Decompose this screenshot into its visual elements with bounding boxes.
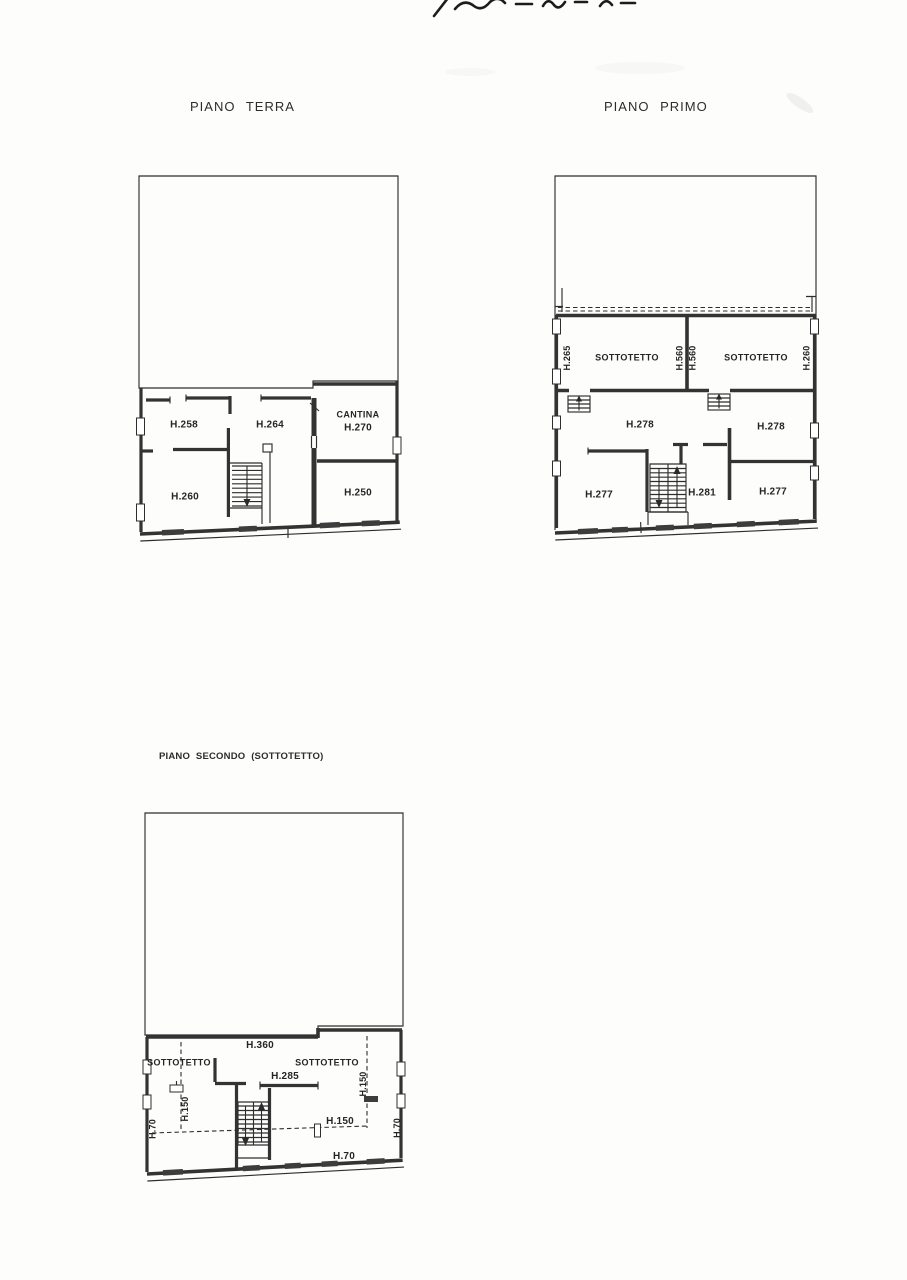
plan-title-piano-secondo: PIANO SECONDO (SOTTOTETTO): [159, 751, 323, 762]
height-label-h560-left: H.560: [675, 345, 685, 370]
terra-walls: [139, 176, 398, 532]
room-label-cantina: CANTINA: [337, 410, 380, 420]
room-label-h278-left: H.278: [626, 420, 654, 431]
floor-plan-piano-terra: H.258 H.264 CANTINA H.270 H.260 H.250: [128, 163, 412, 547]
plan-title-piano-primo: PIANO PRIMO: [604, 99, 708, 114]
primo-steps-left: [568, 396, 590, 413]
floor-plan-piano-secondo: H.360 SOTTOTETTO SOTTOTETTO H.285 H.150 …: [133, 798, 413, 1188]
room-label-h278-right: H.278: [757, 422, 785, 433]
height-label-h70-left: H.70: [148, 1119, 158, 1139]
height-label-h260: H.260: [802, 345, 812, 370]
height-label-h150-left: H.150: [180, 1096, 190, 1121]
room-label-h277-right: H.277: [759, 487, 787, 498]
room-label-sottotetto-left: SOTTOTETTO: [595, 353, 659, 363]
room-label-sottotetto-right: SOTTOTETTO: [724, 353, 788, 363]
height-label-h265: H.265: [562, 345, 572, 370]
room-label-h258: H.258: [170, 420, 198, 431]
height-label-h150-right: H.150: [358, 1071, 368, 1096]
plan-title-piano-terra: PIANO TERRA: [190, 99, 295, 114]
handwritten-annotation-cutoff: [0, 0, 907, 150]
room-label-h260: H.260: [171, 492, 199, 503]
room-label-sottotetto-right: SOTTOTETTO: [295, 1058, 359, 1068]
height-label-h285: H.285: [271, 1071, 299, 1082]
terra-stairs: [230, 444, 288, 538]
scanned-floorplan-page: PIANO TERRA PIANO PRIMO PIANO SECONDO (S…: [0, 0, 907, 1280]
room-label-cantina-h270: H.270: [344, 423, 372, 434]
room-label-sottotetto-left: SOTTOTETTO: [147, 1058, 211, 1068]
height-label-h150-mid: H.150: [326, 1116, 354, 1127]
primo-steps-right: [708, 394, 730, 411]
height-label-h560-right: H.560: [688, 345, 698, 370]
secondo-bottom-wall: [147, 1157, 404, 1181]
height-label-h70-right: H.70: [392, 1118, 402, 1138]
primo-stairs: [648, 464, 688, 525]
height-label-h70-bottom: H.70: [333, 1151, 355, 1162]
room-label-h281: H.281: [688, 488, 716, 499]
room-label-h250: H.250: [344, 488, 372, 499]
room-label-h277-left: H.277: [585, 490, 613, 501]
floor-plan-piano-primo: H.265 SOTTOTETTO H.560 H.560 SOTTOTETTO …: [543, 163, 827, 547]
primo-bottom-wall: [555, 514, 818, 540]
room-label-h264: H.264: [256, 420, 284, 431]
height-label-h360: H.360: [246, 1040, 274, 1051]
